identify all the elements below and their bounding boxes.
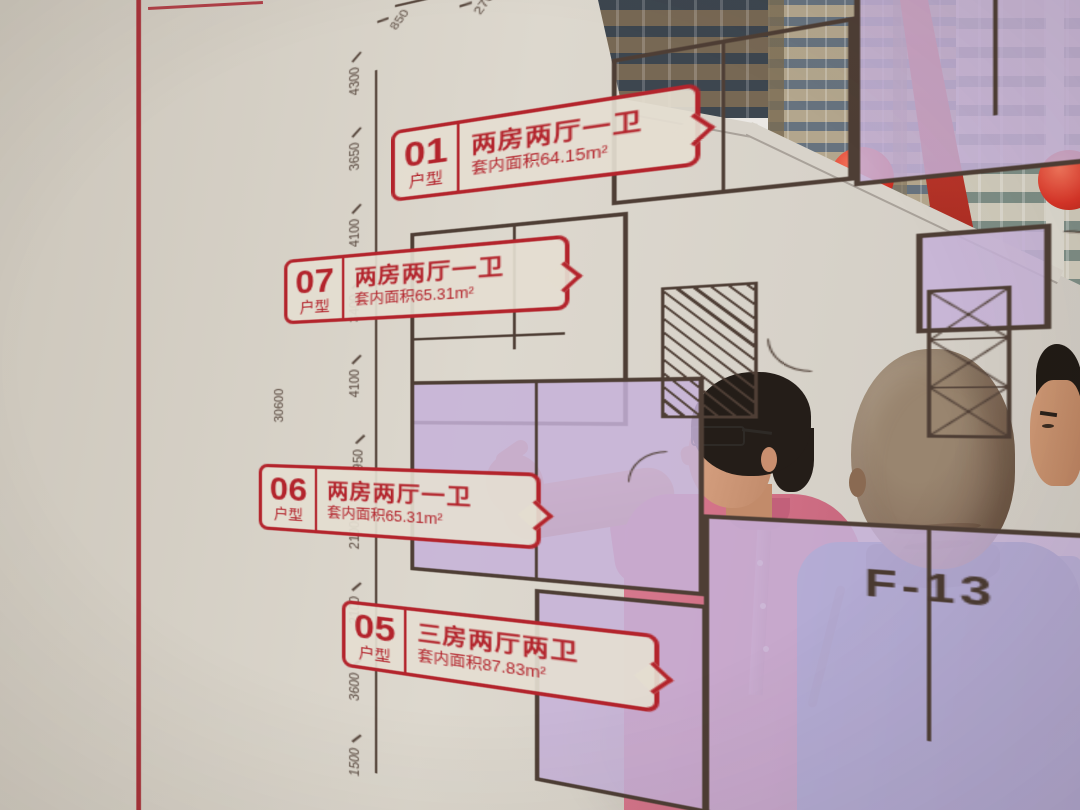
dimension-value: 2700 [471, 0, 515, 23]
callout-number-block: 01 户型 [395, 124, 460, 198]
callout-number-block: 07 户型 [287, 258, 344, 321]
pointing-man-hair [691, 372, 811, 476]
dimension-value: 4100 [348, 369, 363, 398]
door-arc [767, 337, 813, 373]
callout-number-block: 05 户型 [346, 603, 407, 672]
dimension-value: 850 [388, 8, 424, 38]
shirt-button [760, 603, 766, 609]
callout-text-block: 两房两厅一卫 套内面积65.31m² [318, 469, 484, 542]
bald-man-ear [849, 468, 866, 497]
bystander-eye [1042, 424, 1054, 428]
unit-tag: 户型 [358, 644, 390, 665]
photo-floorplan-display: F-13 43003650410034004100950210021003600… [0, 0, 1080, 810]
plan-room-purple [854, 0, 1080, 186]
dimension-value: 4300 [348, 66, 363, 97]
callout-text-block: 两房两厅一卫 套内面积65.31m² [345, 243, 517, 318]
unit-number: 07 [295, 263, 334, 300]
pointing-man-ear [761, 447, 777, 472]
elevator-cell [931, 289, 1007, 341]
board-red-frame-left [136, 0, 141, 810]
plan-wall [993, 0, 998, 116]
dimension-value: 3650 [348, 142, 363, 172]
unit-number: 06 [270, 473, 308, 508]
bystander-face [1030, 380, 1080, 486]
callout-number-block: 06 户型 [262, 467, 318, 530]
door-arc [1063, 226, 1080, 269]
dimension-value: 3600 [348, 671, 363, 702]
unit-tag: 户型 [409, 169, 443, 191]
plan-wall [722, 39, 726, 194]
unit-tag: 户型 [300, 298, 330, 316]
unit-tag: 户型 [274, 506, 303, 524]
eyeglasses [691, 426, 745, 446]
shirt-button [757, 560, 763, 566]
shirt-button [763, 646, 769, 652]
bald-man-head [851, 349, 1015, 569]
dimension-total-left: 30600 [273, 389, 286, 423]
dimension-value: 1500 [348, 746, 363, 777]
dimension-value: 4100 [348, 217, 363, 247]
